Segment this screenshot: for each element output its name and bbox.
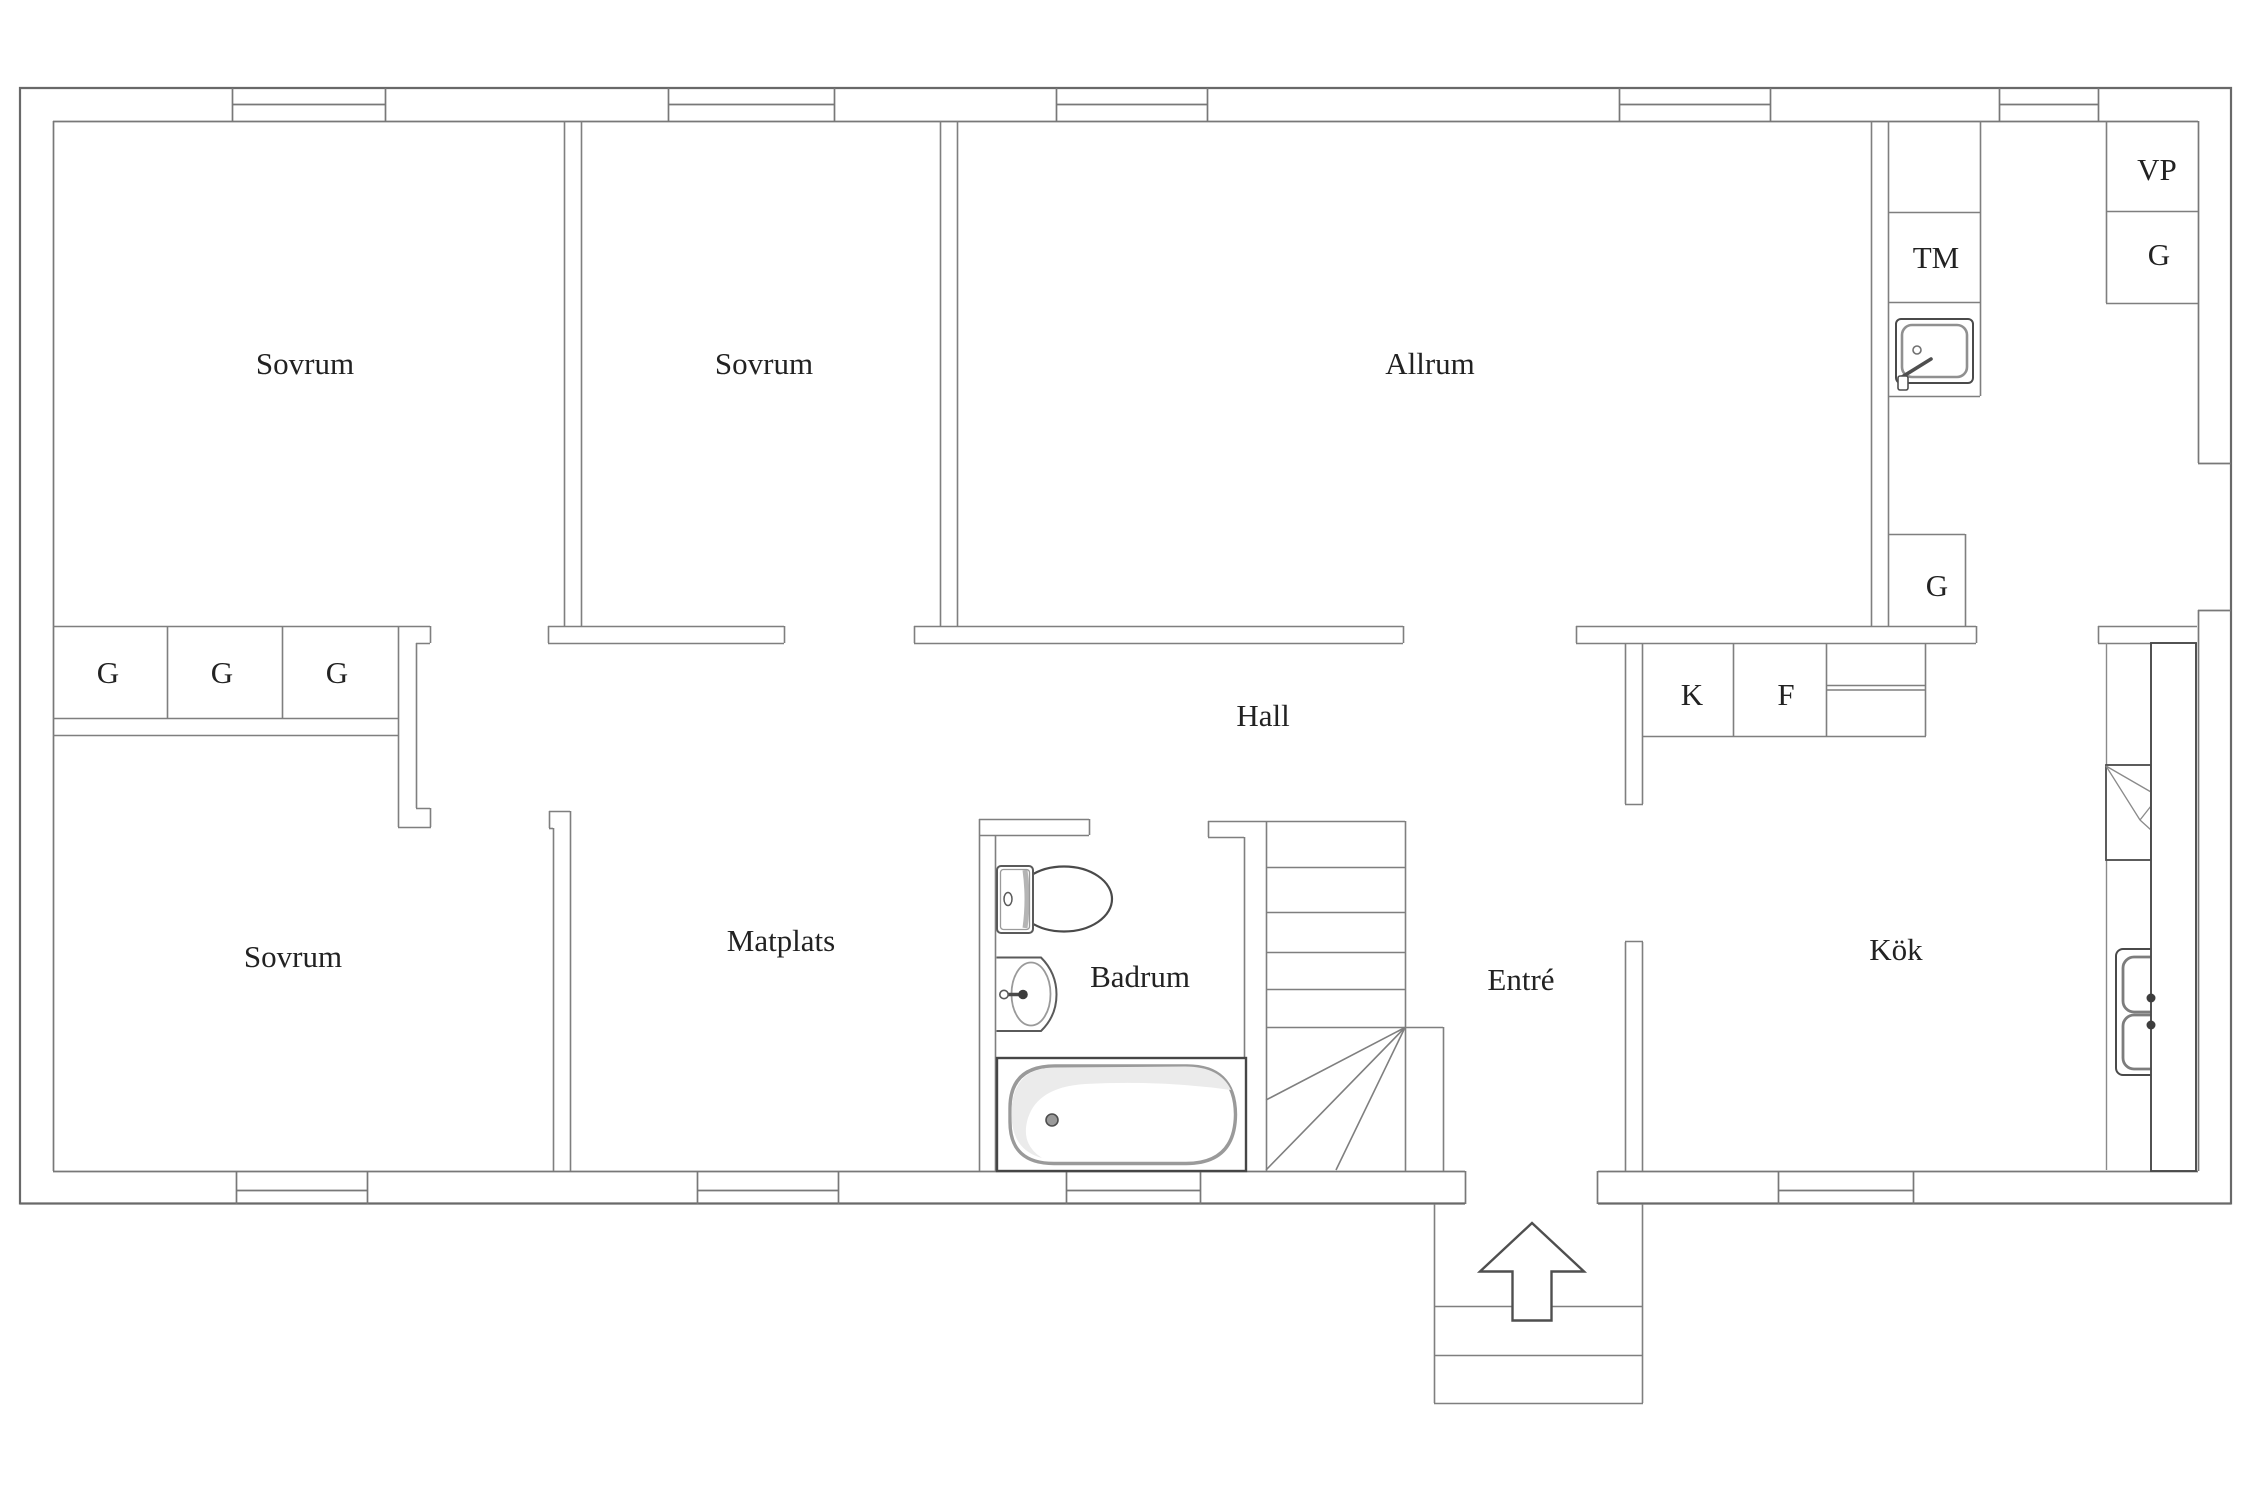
- svg-text:Allrum: Allrum: [1385, 346, 1475, 381]
- svg-text:Sovrum: Sovrum: [244, 939, 342, 974]
- svg-text:VP: VP: [2137, 152, 2177, 187]
- svg-text:G: G: [1926, 568, 1948, 603]
- svg-text:Badrum: Badrum: [1090, 959, 1190, 994]
- svg-text:TM: TM: [1913, 240, 1960, 275]
- svg-text:K: K: [1681, 677, 1704, 712]
- svg-text:Kök: Kök: [1869, 932, 1923, 967]
- svg-text:G: G: [97, 655, 119, 690]
- svg-text:G: G: [211, 655, 233, 690]
- svg-text:Matplats: Matplats: [727, 923, 836, 958]
- svg-text:G: G: [326, 655, 348, 690]
- svg-text:F: F: [1777, 677, 1794, 712]
- svg-text:G: G: [2148, 237, 2170, 272]
- svg-text:Sovrum: Sovrum: [256, 346, 354, 381]
- svg-text:Hall: Hall: [1236, 698, 1289, 733]
- svg-text:Entré: Entré: [1487, 962, 1554, 997]
- svg-text:Sovrum: Sovrum: [715, 346, 813, 381]
